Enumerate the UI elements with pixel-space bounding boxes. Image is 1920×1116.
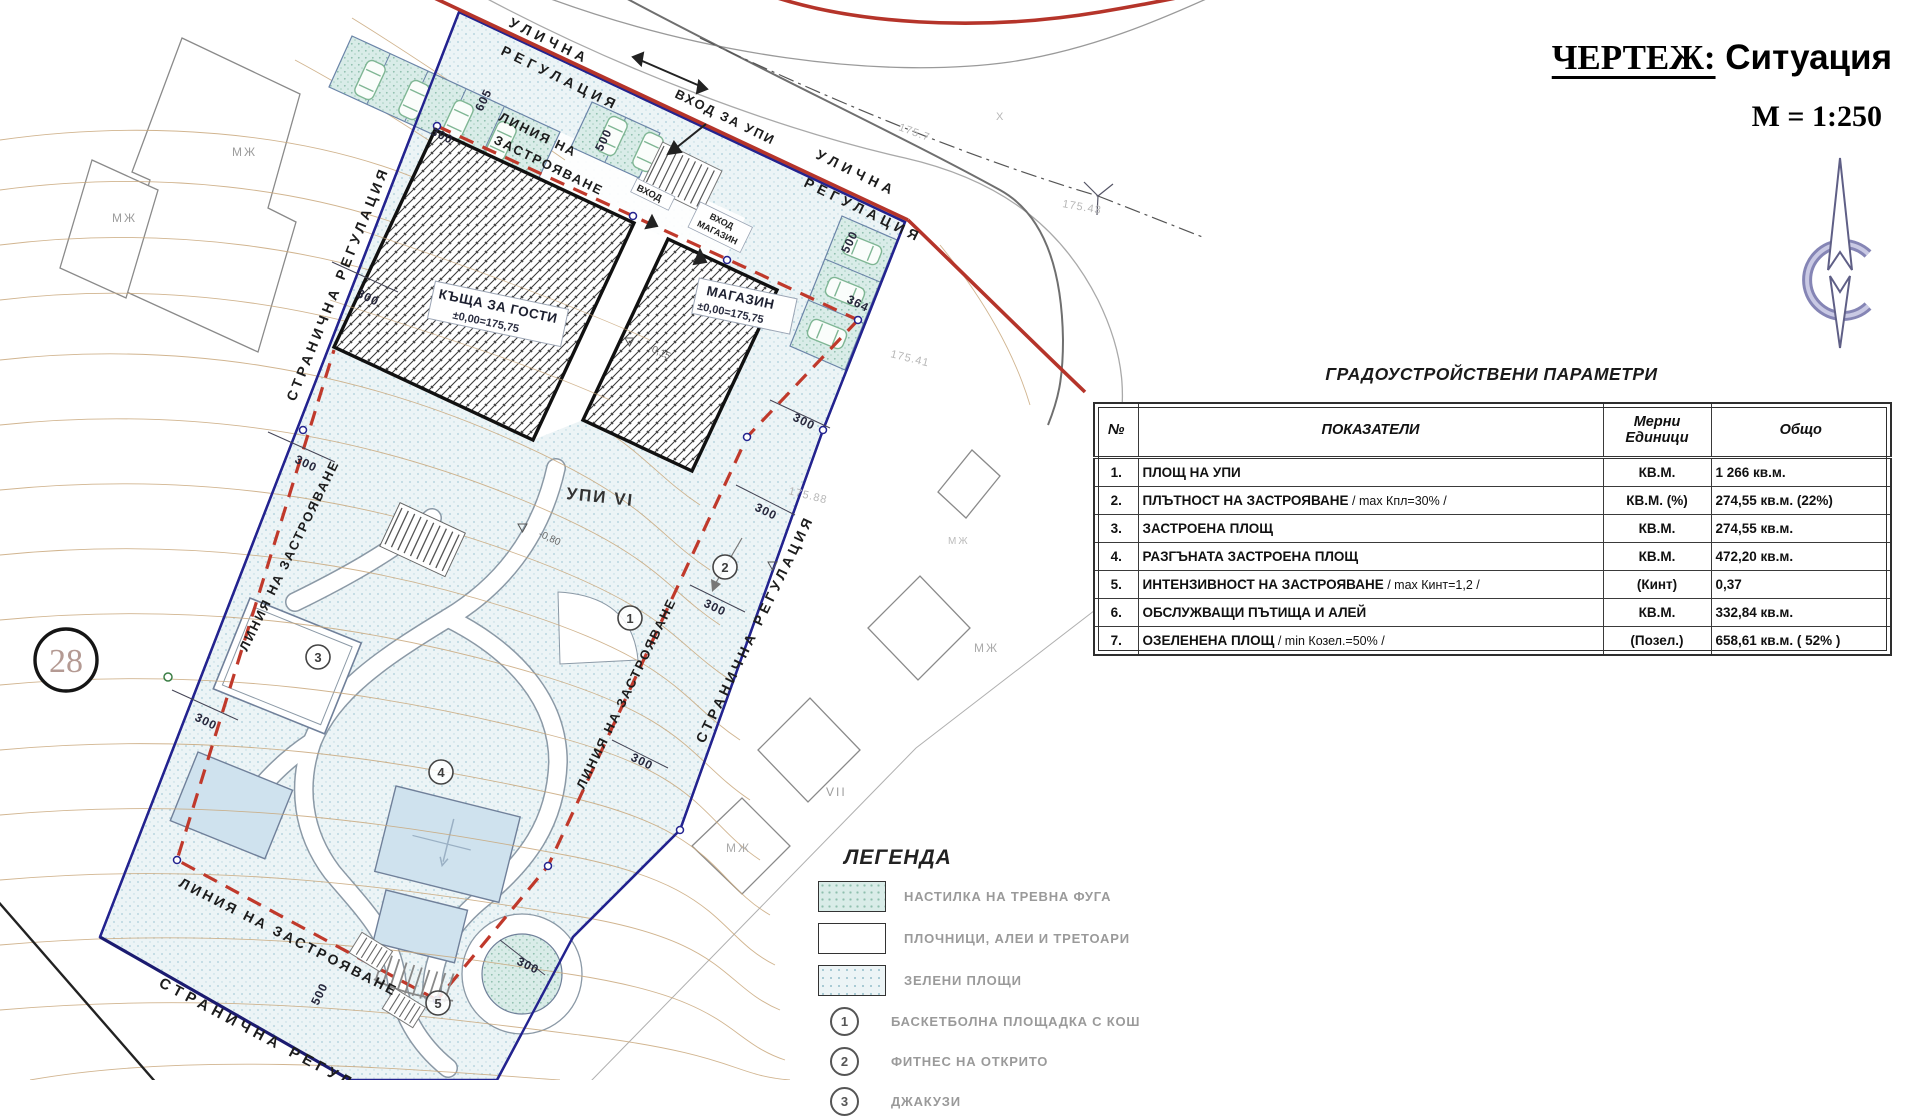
legend-item: ЗЕЛЕНИ ПЛОЩИ	[818, 965, 1248, 996]
row-total: 274,55 кв.м. (22%)	[1711, 487, 1891, 515]
row-num: 4.	[1094, 543, 1138, 571]
table-row: 3. ЗАСТРОЕНА ПЛОЩ КВ.М. 274,55 кв.м.	[1094, 515, 1891, 543]
params-header-row: № ПОКАЗАТЕЛИ МерниЕдиници Общо	[1094, 403, 1891, 458]
legend: ЛЕГЕНДА НАСТИЛКА НА ТРЕВНА ФУГА ПЛОЧНИЦИ…	[818, 846, 1248, 1116]
row-num: 3.	[1094, 515, 1138, 543]
table-row: 1. ПЛОЩ НА УПИ КВ.М. 1 266 кв.м.	[1094, 458, 1891, 487]
marker-2: 2	[713, 555, 737, 579]
drawing-title-label: ЧЕРТЕЖ:	[1552, 38, 1716, 77]
params-table: № ПОКАЗАТЕЛИ МерниЕдиници Общо 1. ПЛОЩ Н…	[1093, 402, 1892, 656]
row-indicator: ОБСЛУЖВАЩИ ПЪТИЩА И АЛЕЙ	[1138, 599, 1603, 627]
row-indicator: ЗАСТРОЕНА ПЛОЩ	[1138, 515, 1603, 543]
marker-3: 3	[306, 645, 330, 669]
north-compass-icon	[1782, 152, 1902, 362]
row-total: 658,61 кв.м. ( 52% )	[1711, 627, 1891, 656]
svg-text:28: 28	[49, 643, 83, 680]
row-indicator: ОЗЕЛЕНЕНА ПЛОЩ / min Козел.=50% /	[1138, 627, 1603, 656]
svg-text:5: 5	[434, 996, 441, 1011]
table-row: 4. РАЗГЪНАТА ЗАСТРОЕНА ПЛОЩ КВ.М. 472,20…	[1094, 543, 1891, 571]
row-num: 2.	[1094, 487, 1138, 515]
col-total: Общо	[1711, 403, 1891, 458]
legend-item: 3 ДЖАКУЗИ	[818, 1087, 1248, 1116]
col-unit: МерниЕдиници	[1603, 403, 1711, 458]
row-unit: КВ.М.	[1603, 458, 1711, 487]
row-num: 7.	[1094, 627, 1138, 656]
row-unit: (Позел.)	[1603, 627, 1711, 656]
marker-1: 1	[618, 606, 642, 630]
col-num: №	[1094, 403, 1138, 458]
drawing-scale: М = 1:250	[1462, 100, 1892, 134]
svg-text:3: 3	[314, 650, 321, 665]
svg-text:175.41: 175.41	[889, 348, 930, 369]
row-total: 274,55 кв.м.	[1711, 515, 1891, 543]
svg-text:МЖ: МЖ	[974, 641, 999, 655]
table-row: 5. ИНТЕНЗИВНОСТ НА ЗАСТРОЯВАНЕ / max Кин…	[1094, 571, 1891, 599]
row-indicator: РАЗГЪНАТА ЗАСТРОЕНА ПЛОЩ	[1138, 543, 1603, 571]
row-num: 5.	[1094, 571, 1138, 599]
paved-alleys-swatch	[818, 923, 886, 954]
row-total: 472,20 кв.м.	[1711, 543, 1891, 571]
row-num: 6.	[1094, 599, 1138, 627]
legend-marker-2: 2	[830, 1047, 859, 1076]
row-total: 332,84 кв.м.	[1711, 599, 1891, 627]
row-unit: КВ.М.	[1603, 543, 1711, 571]
row-indicator: ИНТЕНЗИВНОСТ НА ЗАСТРОЯВАНЕ / max Кинт=1…	[1138, 571, 1603, 599]
row-unit: КВ.М.	[1603, 515, 1711, 543]
table-row: 6. ОБСЛУЖВАЩИ ПЪТИЩА И АЛЕЙ КВ.М. 332,84…	[1094, 599, 1891, 627]
legend-marker-1: 1	[830, 1007, 859, 1036]
drawing-sheet: УЛИЧНА РЕГУЛАЦИЯ УЛИЧНА РЕГУЛАЦИЯ ЛИНИЯ …	[0, 0, 1920, 1080]
svg-text:МЖ: МЖ	[112, 211, 137, 225]
row-indicator: ПЛОЩ НА УПИ	[1138, 458, 1603, 487]
drawing-title: ЧЕРТЕЖ: Ситуация	[1462, 38, 1892, 78]
svg-text:175.43: 175.43	[1061, 198, 1102, 217]
green-areas-swatch	[818, 965, 886, 996]
marker-4: 4	[429, 760, 453, 784]
legend-marker-3: 3	[830, 1087, 859, 1116]
row-total: 1 266 кв.м.	[1711, 458, 1891, 487]
parcel-number-badge: 28	[35, 629, 97, 691]
svg-text:МЖ: МЖ	[232, 145, 257, 159]
svg-text:МЖ: МЖ	[726, 841, 751, 855]
svg-text:X: X	[996, 111, 1004, 123]
drawing-title-name: Ситуация	[1716, 38, 1892, 77]
legend-item: ПЛОЧНИЦИ, АЛЕИ И ТРЕТОАРИ	[818, 923, 1248, 954]
row-total: 0,37	[1711, 571, 1891, 599]
row-indicator: ПЛЪТНОСТ НА ЗАСТРОЯВАНЕ / max Кпл=30% /	[1138, 487, 1603, 515]
legend-item: 2 ФИТНЕС НА ОТКРИТО	[818, 1047, 1248, 1076]
legend-item: НАСТИЛКА НА ТРЕВНА ФУГА	[818, 881, 1248, 912]
table-row: 7. ОЗЕЛЕНЕНА ПЛОЩ / min Козел.=50% / (По…	[1094, 627, 1891, 656]
svg-text:4: 4	[437, 765, 445, 780]
row-unit: КВ.М. (%)	[1603, 487, 1711, 515]
row-num: 1.	[1094, 458, 1138, 487]
svg-text:2: 2	[721, 560, 728, 575]
col-indicator: ПОКАЗАТЕЛИ	[1138, 403, 1603, 458]
svg-text:VII: VII	[826, 785, 847, 799]
marker-5: 5	[426, 991, 450, 1015]
row-unit: (Кинт)	[1603, 571, 1711, 599]
svg-text:175.7: 175.7	[897, 122, 932, 144]
row-unit: КВ.М.	[1603, 599, 1711, 627]
legend-item: 1 БАСКЕТБОЛНА ПЛОЩАДКА С КОШ	[818, 1007, 1248, 1036]
grass-paving-swatch	[818, 881, 886, 912]
legend-title: ЛЕГЕНДА	[844, 846, 1248, 870]
table-row: 2. ПЛЪТНОСТ НА ЗАСТРОЯВАНЕ / max Кпл=30%…	[1094, 487, 1891, 515]
svg-text:1: 1	[626, 611, 633, 626]
title-block: ЧЕРТЕЖ: Ситуация М = 1:250	[1462, 38, 1892, 134]
svg-text:МЖ: МЖ	[948, 536, 970, 547]
params-table-title: ГРАДОУСТРОЙСТВЕНИ ПАРАМЕТРИ	[1093, 364, 1890, 385]
